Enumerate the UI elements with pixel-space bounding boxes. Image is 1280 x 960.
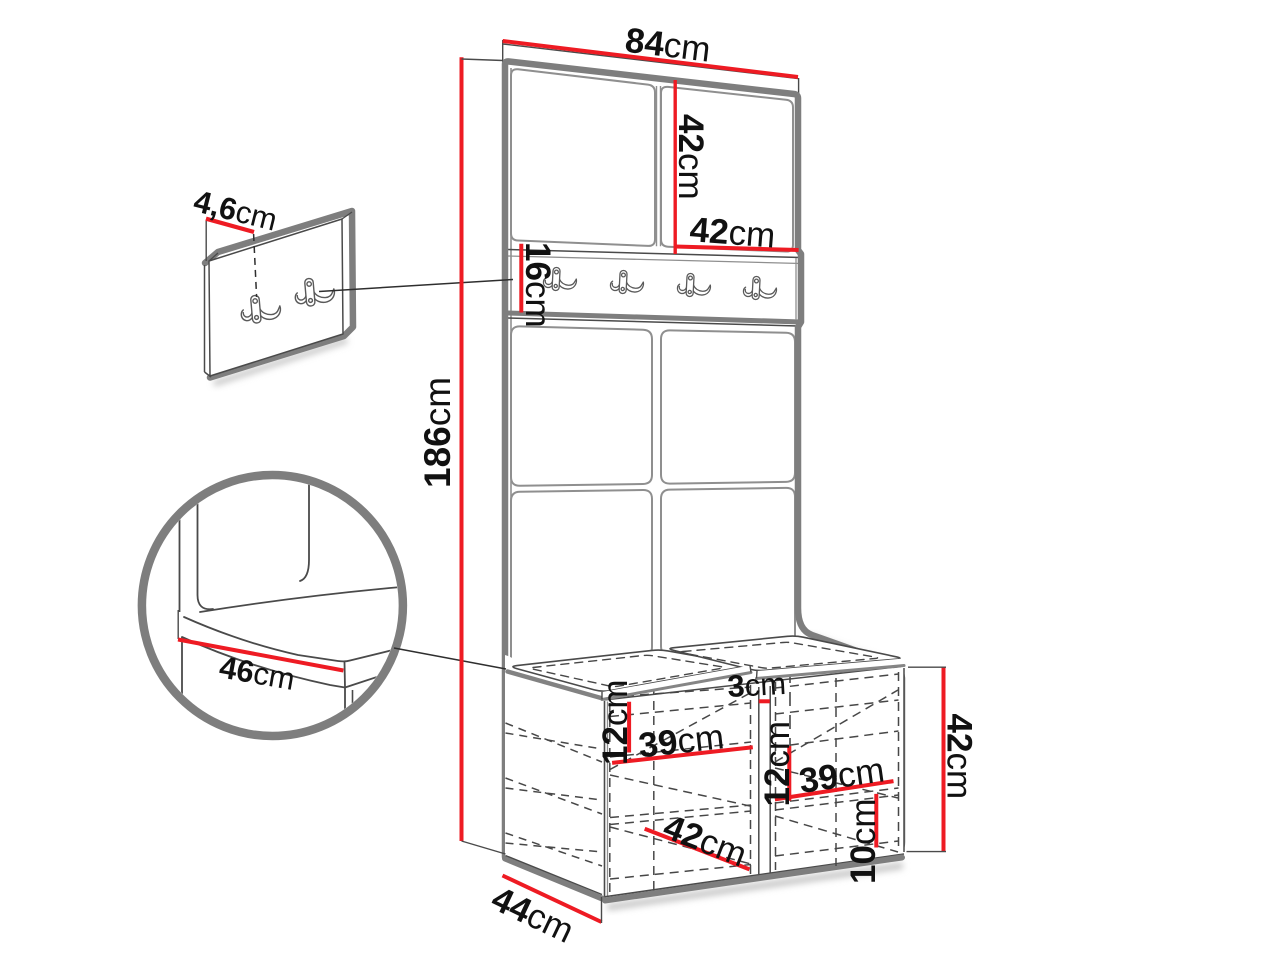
svg-text:42cm: 42cm [671,114,710,200]
svg-text:10cm: 10cm [844,798,883,884]
svg-text:186cm: 186cm [417,377,458,488]
svg-text:42cm: 42cm [940,714,979,800]
svg-text:12cm: 12cm [596,679,635,765]
svg-text:12cm: 12cm [758,721,797,807]
svg-text:16cm: 16cm [518,242,557,328]
svg-text:3cm: 3cm [727,666,787,704]
svg-text:42cm: 42cm [688,210,776,256]
